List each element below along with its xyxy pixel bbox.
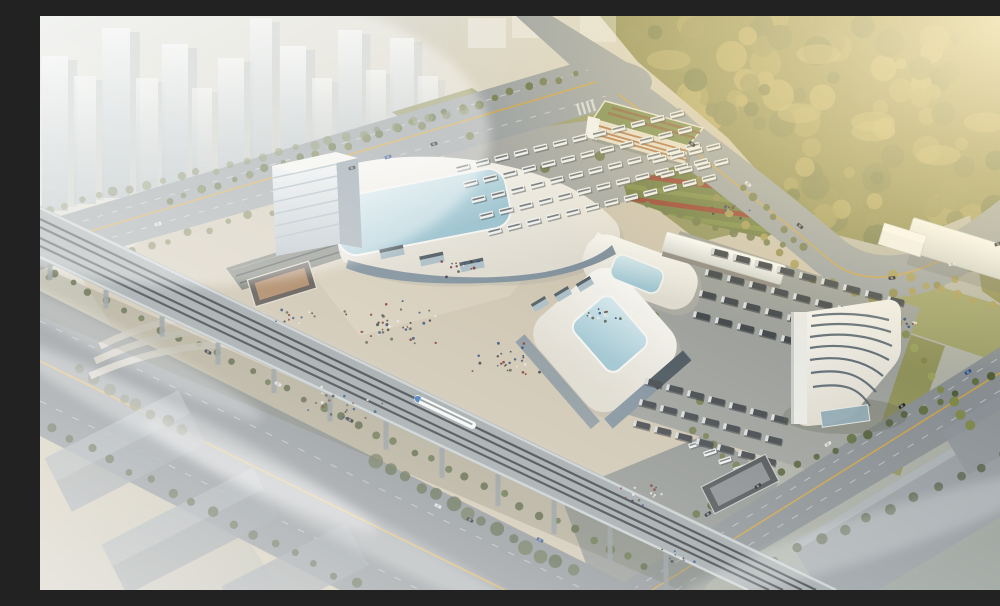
sun-glow [40, 16, 1000, 590]
atmosphere [40, 16, 1000, 590]
scene-canvas [40, 16, 1000, 590]
aerial-render [40, 16, 1000, 590]
